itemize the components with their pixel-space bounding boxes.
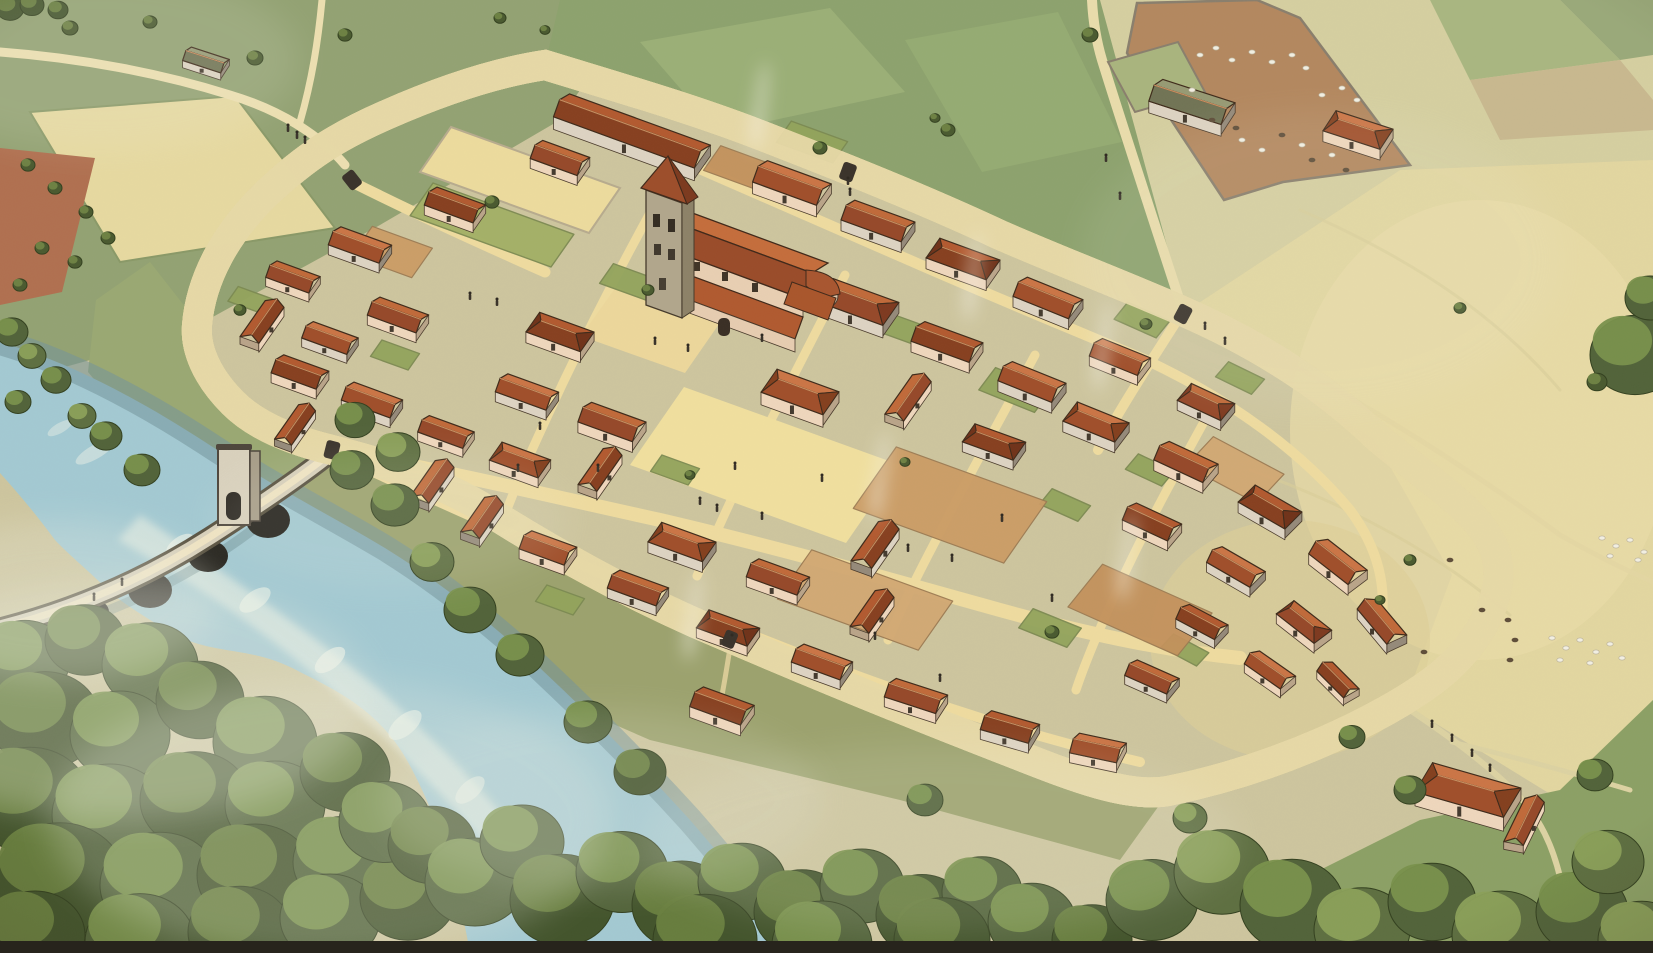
town-illustration: Bird's-eye view illustration of a mediev… [0, 0, 1653, 953]
bottom-border-strip [0, 941, 1653, 953]
illustration-stage: Bird's-eye view illustration of a mediev… [0, 0, 1653, 953]
vignette [0, 0, 1653, 953]
